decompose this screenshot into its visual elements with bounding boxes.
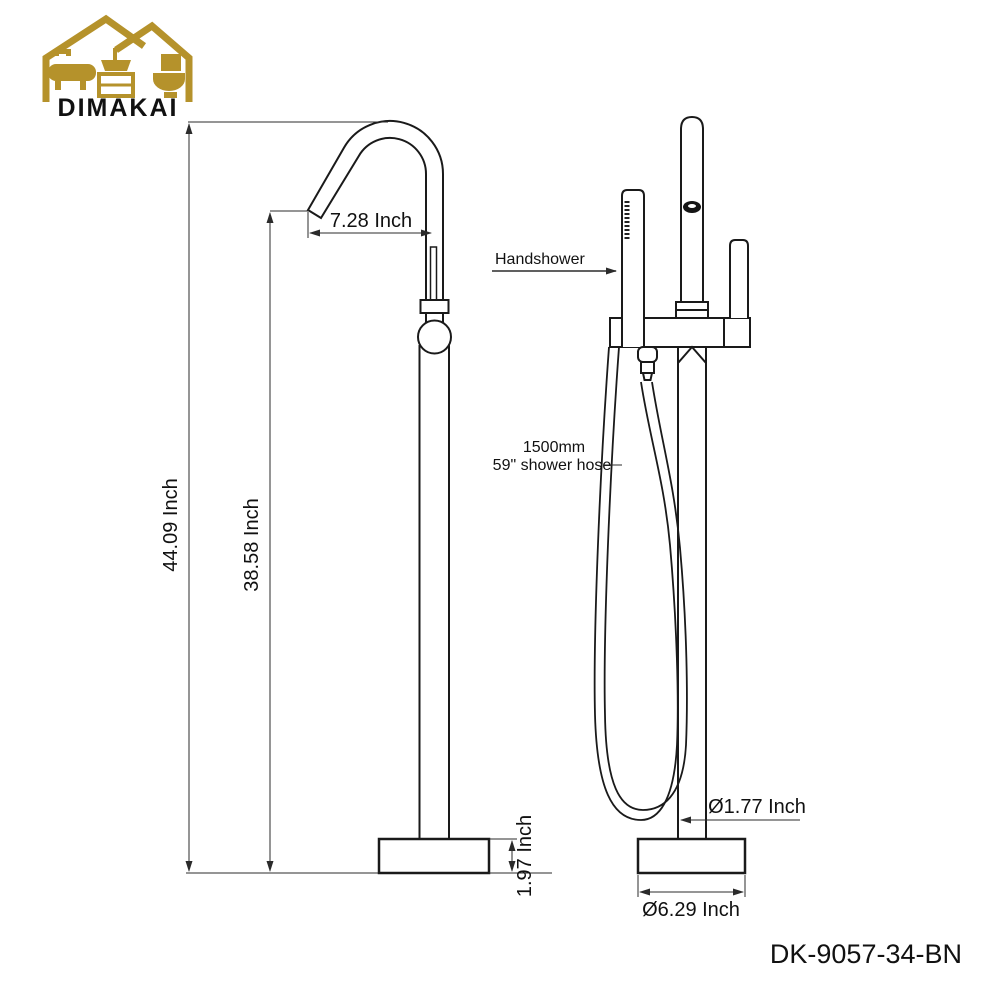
dim-spout-height: 38.58 Inch — [241, 211, 309, 871]
dim-column-diameter-label: Ø1.77 Inch — [708, 796, 806, 818]
logo-sink-icon — [99, 48, 133, 96]
logo-bathtub-faucet — [54, 49, 71, 56]
column-chevron — [678, 347, 706, 363]
hose-mm-label: 1500mm — [523, 439, 585, 456]
faucet-side-view — [186, 121, 552, 873]
logo-toilet-icon — [153, 54, 185, 98]
dim-spout-reach: 7.28 Inch — [308, 210, 431, 238]
dimension-diagram-page: DIMAKAI 44.09 Inch 38.58 Inch — [0, 0, 1000, 1000]
dim-base-diameter: Ø6.29 Inch — [638, 875, 745, 921]
dim-column-diameter: Ø1.77 Inch — [681, 796, 806, 820]
dim-total-height-label: 44.09 Inch — [160, 478, 182, 571]
temperature-rod — [431, 247, 437, 300]
product-code: DK-9057-34-BN — [770, 939, 962, 969]
brand-logo: DIMAKAI — [46, 19, 189, 122]
hose-connector-tip — [643, 373, 652, 380]
handshower-label: Handshower — [495, 251, 586, 268]
hose-connector-nut — [641, 362, 654, 373]
hose-inch-label: 59" shower hose — [493, 457, 612, 474]
logo-bathtub-leg — [55, 81, 61, 90]
logo-toilet-bowl — [153, 73, 185, 91]
collar — [421, 300, 449, 313]
ball-joint — [418, 321, 451, 354]
dim-base-height: 1.97 Inch — [489, 815, 536, 897]
dim-spout-reach-label: 7.28 Inch — [330, 210, 412, 232]
dim-total-height: 44.09 Inch — [160, 122, 388, 871]
dim-base-diameter-label: Ø6.29 Inch — [642, 899, 740, 921]
handshower-callout: Handshower — [492, 251, 616, 271]
logo-sink-basin — [101, 60, 131, 71]
temp-handle — [730, 240, 748, 318]
side-view-dimensions: 44.09 Inch 38.58 Inch 7.28 Inch 1.97 Inc… — [160, 122, 536, 897]
dimension-diagram: DIMAKAI 44.09 Inch 38.58 Inch — [0, 0, 1000, 1000]
shower-hose — [595, 347, 687, 820]
logo-sink-faucet — [113, 48, 117, 60]
hose-inner-edge — [605, 347, 687, 810]
spout-ring-highlight — [688, 204, 696, 208]
logo-bathtub-body — [48, 64, 96, 81]
logo-toilet-tank — [161, 54, 181, 71]
dim-base-height-label: 1.97 Inch — [514, 815, 536, 897]
logo-bathtub-icon — [48, 49, 96, 90]
base-front — [638, 839, 745, 873]
dim-spout-height-label: 38.58 Inch — [241, 498, 263, 591]
logo-bathtub-leg — [80, 81, 86, 90]
faucet-front-view — [595, 117, 750, 873]
logo-wordmark: DIMAKAI — [58, 94, 179, 122]
base-side — [379, 839, 489, 873]
hose-connector — [638, 347, 657, 362]
